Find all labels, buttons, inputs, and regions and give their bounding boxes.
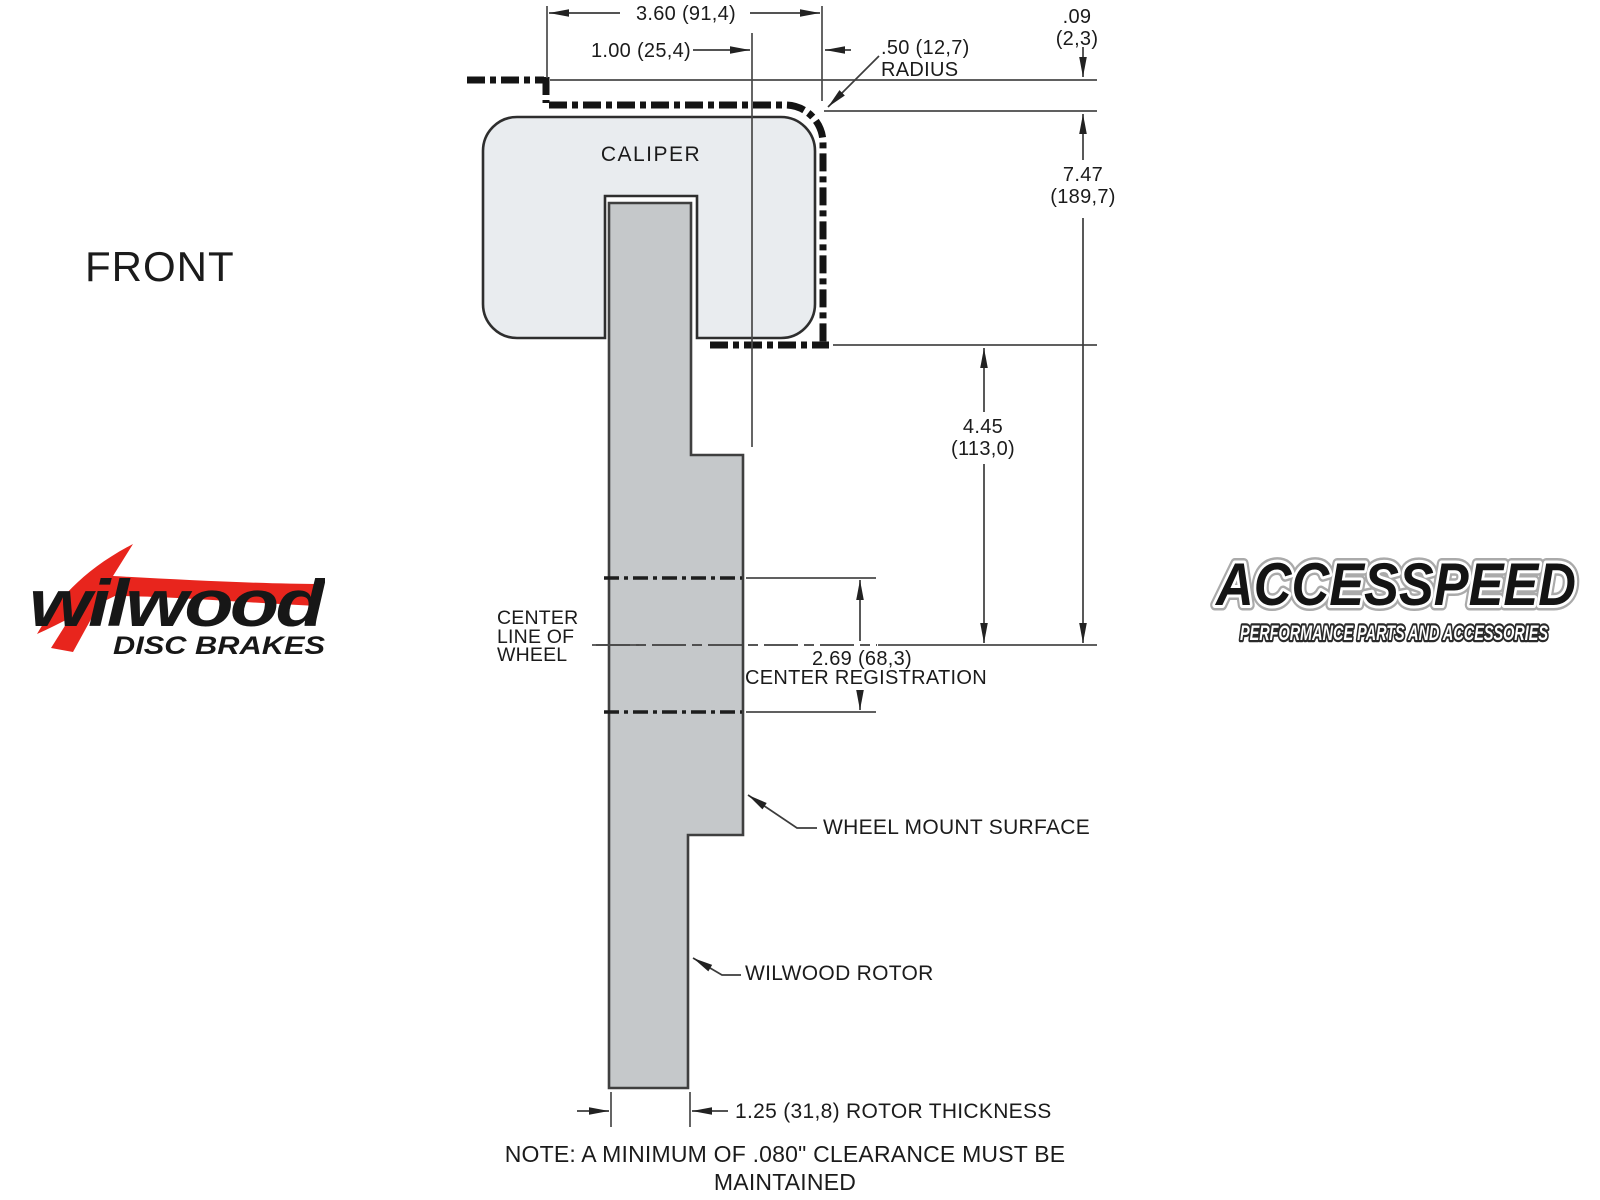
accesspeed-wordmark: ACCESSPEED — [1214, 551, 1576, 618]
dim-height-mm: (189,7) — [1050, 186, 1115, 208]
dim-radius-word: RADIUS — [881, 59, 970, 81]
dim-radius: .50 (12,7) RADIUS — [881, 37, 970, 81]
clearance-note-line2: BETWEEN THE WHEEL AND CALIPER IN ALL ARE… — [460, 1196, 1110, 1200]
caliper-label: CALIPER — [601, 143, 701, 167]
dim-clearance-mm: (2,3) — [1056, 28, 1099, 50]
centerline-callout-line3: WHEEL — [497, 646, 578, 665]
dim-rotor-thickness: 1.25 (31,8) ROTOR THICKNESS — [735, 1100, 1052, 1124]
accesspeed-tagline: PERFORMANCE PARTS AND ACCESSORIES — [1240, 622, 1548, 645]
accesspeed-logo: ACCESSPEED ACCESSPEED ACCESSPEED PERFORM… — [1198, 537, 1588, 652]
wheel-mount-callout: WHEEL MOUNT SURFACE — [823, 816, 1090, 840]
centerline-callout: CENTER LINE OF WHEEL — [497, 609, 578, 665]
view-label: FRONT — [85, 243, 235, 291]
wilwood-logo: wilwood DISC BRAKES — [15, 538, 325, 660]
dim-caliper-to-center-mm: (113,0) — [951, 438, 1015, 460]
dim-overall-width: 3.60 (91,4) — [636, 3, 736, 26]
dim-clearance-in: .09 — [1056, 6, 1099, 28]
clearance-note: NOTE: A MINIMUM OF .080" CLEARANCE MUST … — [460, 1140, 1110, 1200]
dim-offset: 1.00 (25,4) — [591, 40, 691, 63]
wilwood-wordmark: wilwood — [29, 566, 325, 640]
clearance-note-line1: NOTE: A MINIMUM OF .080" CLEARANCE MUST … — [460, 1140, 1110, 1196]
rotor-callout: WILWOOD ROTOR — [745, 962, 934, 986]
dim-radius-value: .50 (12,7) — [881, 37, 970, 59]
dim-height: 7.47 (189,7) — [1050, 164, 1115, 208]
dim-caliper-to-center: 4.45 (113,0) — [951, 416, 1015, 460]
dim-caliper-to-center-in: 4.45 — [951, 416, 1015, 438]
centerline-callout-line1: CENTER — [497, 609, 578, 628]
wilwood-tagline: DISC BRAKES — [113, 632, 325, 660]
dim-center-registration-label: CENTER REGISTRATION — [745, 667, 987, 690]
brake-diagram-page: FRONT CALIPER 3.60 (91,4) 1.00 (25,4) .5… — [0, 0, 1600, 1200]
dim-clearance: .09 (2,3) — [1056, 6, 1099, 50]
dim-height-in: 7.47 — [1050, 164, 1115, 186]
